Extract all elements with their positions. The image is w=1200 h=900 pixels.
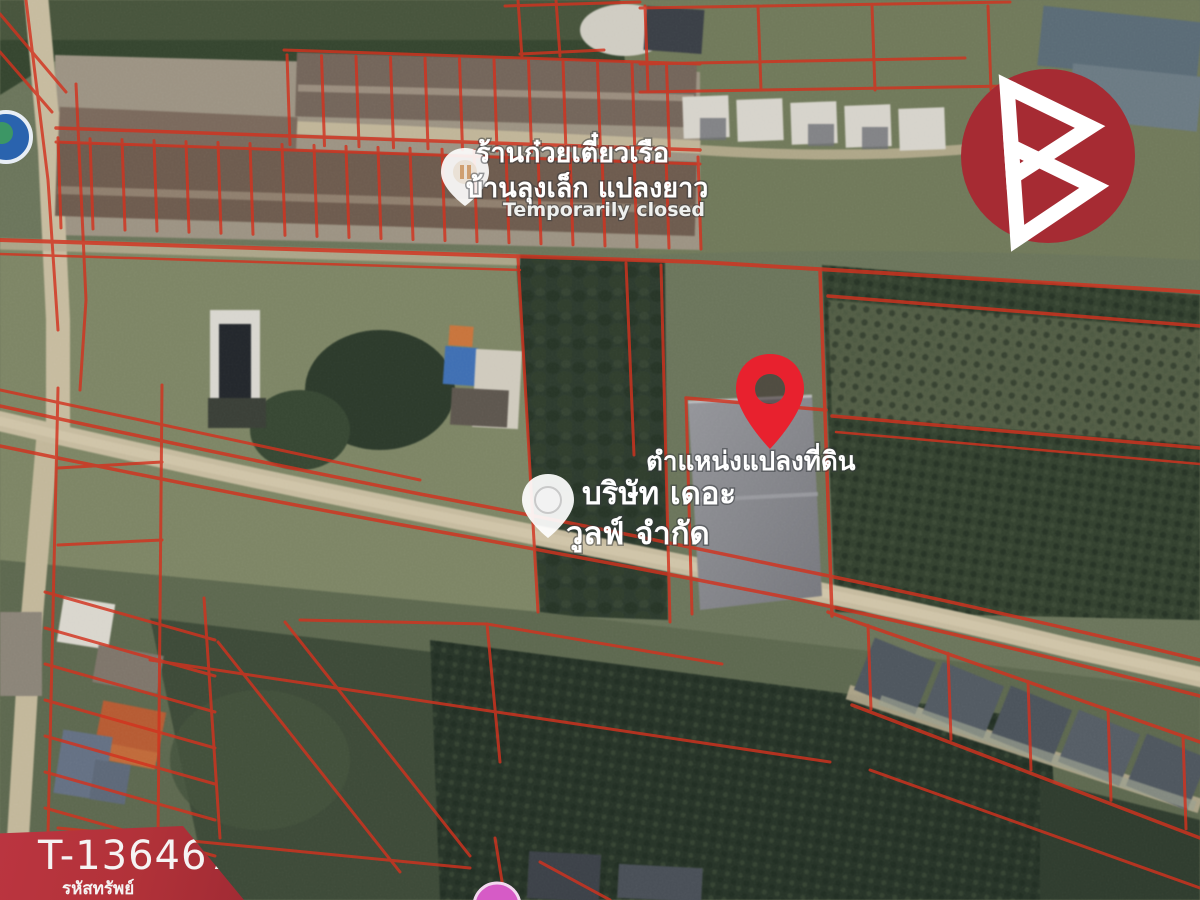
restaurant-label-line1: ร้านก๋วยเตี๋ยวเรือ [476, 132, 669, 169]
company-label-line1: บริษัท เดอะ [582, 476, 736, 512]
satellite-map-view[interactable]: ร้านก๋วยเตี๋ยวเรือ บ้านลุงเล็ก แปลงยาว T… [0, 0, 1200, 900]
brand-logo [961, 69, 1135, 243]
restaurant-status-label: Temporarily closed [503, 199, 705, 221]
company-label-line2: วูลฟ์ จำกัด [566, 516, 710, 553]
poi-blue-icon[interactable] [0, 112, 31, 162]
map-canvas[interactable]: ร้านก๋วยเตี๋ยวเรือ บ้านลุงเล็ก แปลงยาว T… [0, 0, 1200, 900]
parcel-location-label: ตำแหน่งแปลงที่ดิน [646, 442, 856, 477]
